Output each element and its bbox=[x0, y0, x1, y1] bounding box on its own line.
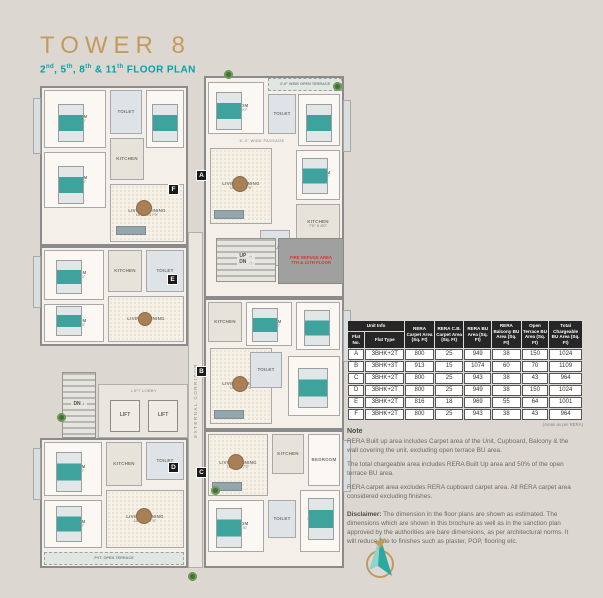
kitchen: KITCHEN bbox=[272, 434, 304, 474]
area-table: Unit InfoRERA Carpet Area (Sq. Ft)RERA C… bbox=[347, 320, 583, 421]
bed bbox=[302, 158, 328, 194]
bed bbox=[56, 506, 82, 542]
table-cell: 15 bbox=[435, 361, 464, 372]
column-header: RERA Carpet Area (Sq. Ft) bbox=[405, 321, 434, 348]
table-cell: 3BHK+2T bbox=[365, 409, 404, 420]
area-table-body: A3BHK+2T80025949381501024B3BHK+3T9131510… bbox=[348, 349, 582, 420]
kitchen: KITCHEN bbox=[110, 138, 144, 180]
bed bbox=[56, 306, 82, 336]
column-header: RERA BU Area (Sq. Ft) bbox=[464, 321, 491, 348]
table-cell: D bbox=[348, 385, 364, 396]
table-cell: 1001 bbox=[549, 397, 582, 408]
table-cell: 38 bbox=[492, 373, 521, 384]
table-cell: C bbox=[348, 373, 364, 384]
note-paragraph: RERA Built up area includes Carpet area … bbox=[347, 438, 575, 456]
sofa bbox=[214, 210, 244, 219]
table-cell: 55 bbox=[492, 397, 521, 408]
sub-header: Flat No. bbox=[348, 332, 364, 348]
bed bbox=[298, 368, 328, 408]
lift-1: LIFT bbox=[110, 400, 140, 432]
dining-table bbox=[138, 312, 152, 326]
table-footnote: (Areas as per RERA) bbox=[347, 422, 583, 427]
bed bbox=[58, 104, 84, 142]
table-cell: 800 bbox=[405, 385, 434, 396]
table-cell: 800 bbox=[405, 409, 434, 420]
bed bbox=[56, 260, 82, 294]
plant bbox=[188, 572, 197, 581]
kitchen: KITCHEN bbox=[208, 302, 242, 342]
table-cell: 1074 bbox=[464, 361, 491, 372]
dining-table bbox=[136, 508, 152, 524]
table-cell: 18 bbox=[435, 397, 464, 408]
staircase-left: DN ↓ bbox=[62, 372, 96, 438]
bed bbox=[306, 104, 332, 142]
area-table-head: Unit InfoRERA Carpet Area (Sq. Ft)RERA C… bbox=[348, 321, 582, 348]
toilet: TOILET bbox=[146, 250, 184, 292]
column-header: Total Chargeable BU Area (Sq. Ft) bbox=[549, 321, 582, 348]
table-cell: B bbox=[348, 361, 364, 372]
unit-marker-b: B bbox=[196, 366, 207, 377]
note-paragraphs: RERA Built up area includes Carpet area … bbox=[347, 438, 575, 502]
note-paragraph: The total chargeable area includes RERA … bbox=[347, 461, 575, 479]
sofa bbox=[116, 226, 146, 235]
table-cell: 964 bbox=[549, 373, 582, 384]
table-cell: 3BHK+2T bbox=[365, 373, 404, 384]
kitchen: KITCHEN bbox=[108, 250, 142, 292]
table-cell: 70 bbox=[522, 361, 549, 372]
table-cell: 25 bbox=[435, 373, 464, 384]
table-cell: 38 bbox=[492, 409, 521, 420]
balcony bbox=[343, 100, 351, 152]
table-cell: 38 bbox=[492, 349, 521, 360]
brochure-page: TOWER 8 2nd, 5th, 8th & 11th FLOOR PLAN … bbox=[0, 0, 603, 598]
bed bbox=[216, 508, 242, 548]
table-cell: 3BHK+2T bbox=[365, 349, 404, 360]
table-cell: 25 bbox=[435, 409, 464, 420]
table-cell: 3BHK+2T bbox=[365, 385, 404, 396]
bed bbox=[152, 104, 178, 142]
table-cell: A bbox=[348, 349, 364, 360]
toilet: TOILET bbox=[250, 352, 282, 388]
balcony bbox=[33, 98, 41, 154]
plant bbox=[57, 413, 66, 422]
table-cell: 800 bbox=[405, 373, 434, 384]
header: TOWER 8 2nd, 5th, 8th & 11th FLOOR PLAN bbox=[40, 32, 196, 75]
note-paragraph: RERA carpet area excludes RERA cupboard … bbox=[347, 484, 575, 502]
bed bbox=[304, 310, 330, 346]
table-cell: 943 bbox=[464, 409, 491, 420]
plant bbox=[224, 70, 233, 79]
balcony bbox=[33, 448, 41, 500]
dining-table bbox=[136, 200, 152, 216]
kitchen: KITCHEN bbox=[106, 442, 142, 486]
table-cell: 60 bbox=[492, 361, 521, 372]
table-row: B3BHK+3T91315107460701109 bbox=[348, 361, 582, 372]
table-cell: 43 bbox=[522, 373, 549, 384]
lift-2: LIFT bbox=[148, 400, 178, 432]
area-table-section: Unit InfoRERA Carpet Area (Sq. Ft)RERA C… bbox=[347, 320, 583, 427]
passage-label: 6'-0" WIDE PASSAGE bbox=[224, 138, 300, 145]
balcony bbox=[33, 256, 41, 308]
table-cell: 25 bbox=[435, 385, 464, 396]
table-row: D3BHK+2T80025949381501024 bbox=[348, 385, 582, 396]
bed bbox=[58, 166, 84, 204]
table-cell: 949 bbox=[464, 349, 491, 360]
open-terrace: PVT. OPEN TERRACE bbox=[44, 552, 184, 565]
table-cell: 43 bbox=[522, 409, 549, 420]
table-cell: 949 bbox=[464, 385, 491, 396]
table-cell: 964 bbox=[549, 409, 582, 420]
table-cell: 943 bbox=[464, 373, 491, 384]
table-cell: 150 bbox=[522, 349, 549, 360]
table-cell: 3BHK+2T bbox=[365, 397, 404, 408]
unit-marker-a: A bbox=[196, 170, 207, 181]
lift-lobby-label: LIFT LOBBY bbox=[104, 387, 184, 395]
table-cell: 816 bbox=[405, 397, 434, 408]
bed bbox=[308, 498, 334, 540]
table-cell: 913 bbox=[405, 361, 434, 372]
column-header: RERA Balcony BU Area (Sq. Ft) bbox=[492, 321, 521, 348]
staircase-up-down: UP →DN → bbox=[216, 238, 276, 282]
toilet: TOILET bbox=[268, 500, 296, 538]
bed bbox=[216, 92, 242, 130]
unit-marker-e: E bbox=[167, 274, 178, 285]
table-row: E3BHK+2T8161896955641001 bbox=[348, 397, 582, 408]
bedroom: BEDROOM bbox=[308, 434, 340, 486]
page-subtitle: 2nd, 5th, 8th & 11th FLOOR PLAN bbox=[40, 64, 196, 75]
dining-table bbox=[232, 176, 248, 192]
column-header: Open Terrace BU Area (Sq. Ft) bbox=[522, 321, 549, 348]
table-cell: 1024 bbox=[549, 349, 582, 360]
table-cell: 150 bbox=[522, 385, 549, 396]
table-cell: 25 bbox=[435, 349, 464, 360]
open-terrace: 4'-0" WIDE OPEN TERRACE bbox=[268, 78, 342, 91]
sub-header: Flat Type bbox=[365, 332, 404, 348]
unit-marker-c: C bbox=[196, 467, 207, 478]
table-cell: 969 bbox=[464, 397, 491, 408]
unit-marker-f: F bbox=[168, 184, 179, 195]
table-row: A3BHK+2T80025949381501024 bbox=[348, 349, 582, 360]
disclaimer-label: Disclaimer: bbox=[347, 511, 381, 518]
bed bbox=[56, 452, 82, 492]
table-cell: F bbox=[348, 409, 364, 420]
plant bbox=[333, 82, 342, 91]
fire-refuge-area: FIRE REFUGE AREA7TH & 11TH FLOOR bbox=[278, 238, 344, 284]
table-cell: 64 bbox=[522, 397, 549, 408]
table-cell: 3BHK+3T bbox=[365, 361, 404, 372]
table-cell: 1024 bbox=[549, 385, 582, 396]
note-heading: Note bbox=[347, 428, 575, 435]
table-row: C3BHK+2T800259433843964 bbox=[348, 373, 582, 384]
unit-marker-d: D bbox=[168, 462, 179, 473]
table-cell: 800 bbox=[405, 349, 434, 360]
sofa bbox=[214, 410, 244, 419]
table-row: F3BHK+2T800259433843964 bbox=[348, 409, 582, 420]
toilet: TOILET bbox=[110, 90, 142, 134]
north-compass-icon bbox=[354, 532, 404, 595]
table-cell: 1109 bbox=[549, 361, 582, 372]
dining-table bbox=[228, 454, 244, 470]
toilet: TOILET bbox=[268, 94, 296, 134]
unit-info-header: Unit Info bbox=[348, 321, 404, 331]
table-cell: E bbox=[348, 397, 364, 408]
dining-table bbox=[232, 376, 248, 392]
table-cell: 38 bbox=[492, 385, 521, 396]
page-title: TOWER 8 bbox=[40, 32, 196, 60]
toilet: TOILET bbox=[146, 442, 184, 480]
column-header: RERA C.B. Carpet Area (Sq. Ft) bbox=[435, 321, 464, 348]
plant bbox=[211, 486, 220, 495]
bed bbox=[252, 308, 278, 342]
external-corridor: EXTERNAL CORRIDOR bbox=[188, 232, 203, 568]
